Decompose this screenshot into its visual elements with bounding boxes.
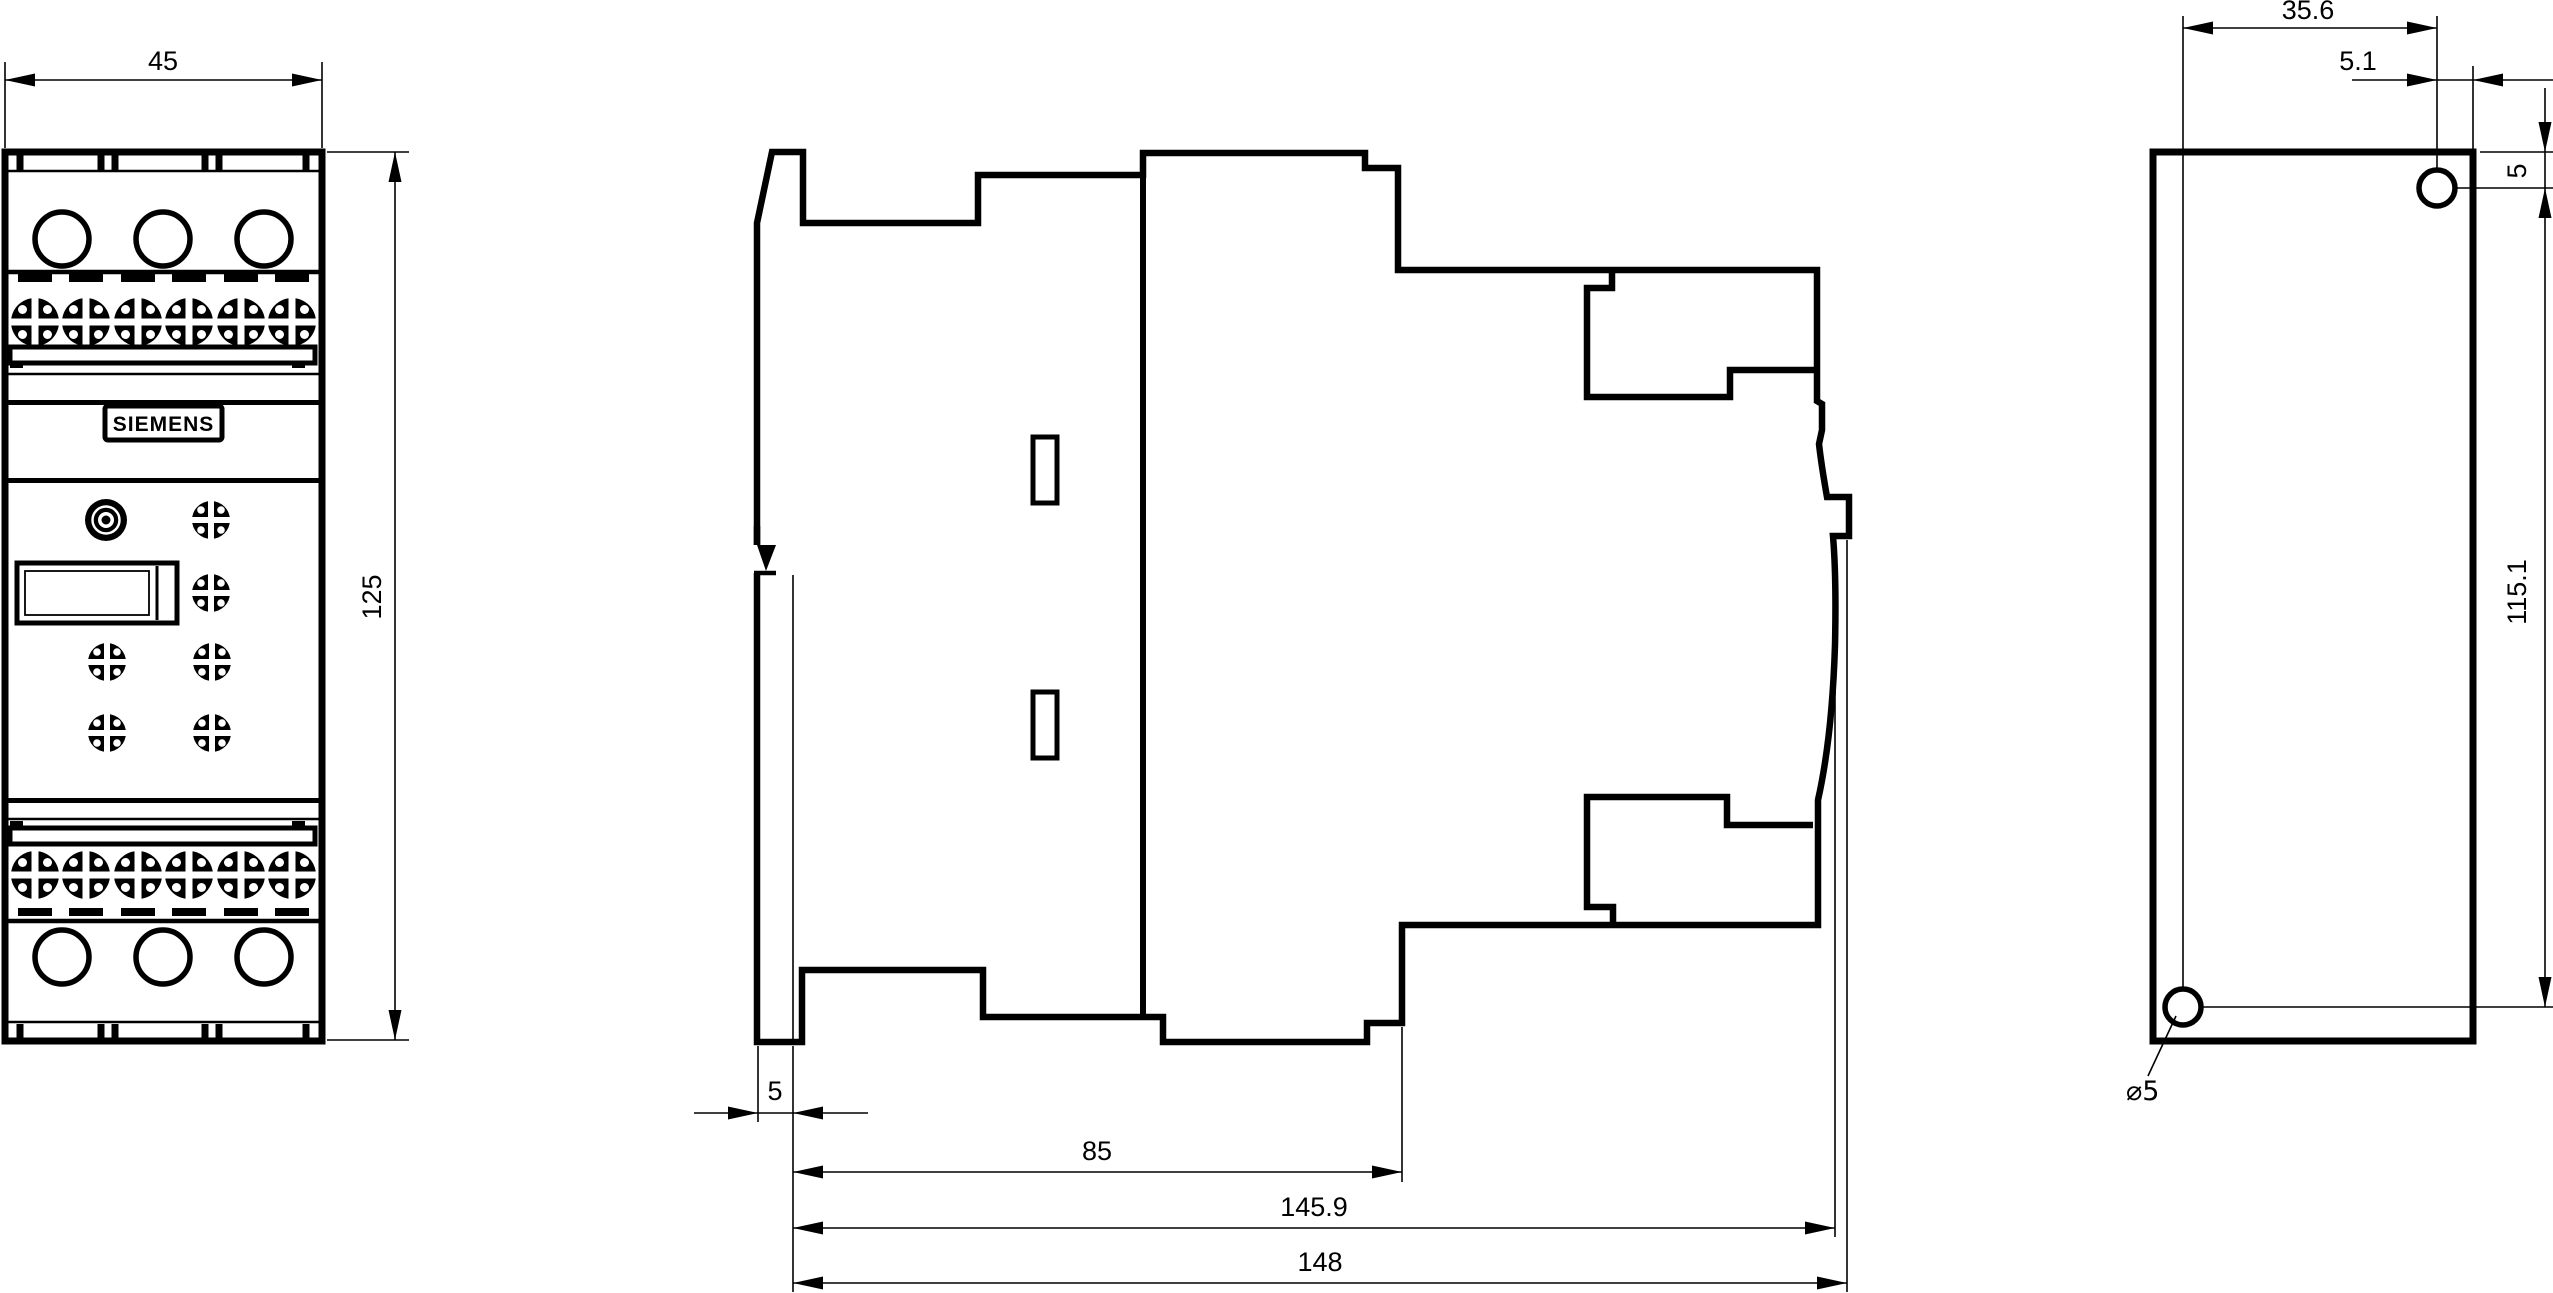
dim-total-depth: 148: [1297, 1247, 1342, 1277]
panel-screw: [192, 574, 230, 612]
top-terminal-slots: [18, 274, 309, 282]
bottom-cover-bar: [10, 828, 315, 844]
dim-depth: 145.9: [1280, 1192, 1348, 1222]
top-cover-foot-right: [292, 361, 305, 368]
front-body-outline: [5, 152, 322, 1041]
dim-rail-plate: 5: [767, 1076, 782, 1106]
dim-hole-edge: 5.1: [2339, 46, 2377, 76]
total-depth-dimension: 148: [793, 540, 1847, 1292]
bottom-cover-foot-right: [292, 821, 305, 828]
top-strip-dividers: [17, 153, 310, 170]
lower-cavity-notch: [1587, 797, 1813, 925]
top-terminal-screws: [11, 298, 316, 346]
panel-screw: [193, 714, 231, 752]
drawing-stage: SIEMENS: [0, 0, 2553, 1293]
dim-front-height: 125: [357, 574, 387, 619]
rear-view: 35.6 5.1 5 115.1 ⌀5: [2126, 0, 2553, 1107]
upper-cavity-notch: [1587, 270, 1815, 397]
rear-outline: [2153, 152, 2473, 1041]
technical-drawing: SIEMENS: [0, 0, 2553, 1293]
dim-hole-diameter: ⌀5: [2126, 1076, 2159, 1107]
panel-screw: [193, 643, 231, 681]
dim-hole-top: 5: [2502, 163, 2532, 178]
hole-pitch-dimension: 5 115.1: [2203, 88, 2553, 1007]
dim-hole-offset: 35.6: [2282, 0, 2335, 25]
dim-front-width: 45: [148, 46, 178, 76]
brand-label: SIEMENS: [113, 413, 215, 436]
rail-plate-dimension: 5: [694, 1046, 868, 1292]
hole-offset-dimension: 35.6: [2183, 0, 2437, 989]
bottom-terminal-slots: [18, 908, 309, 916]
vent-slot-upper: [1033, 437, 1057, 503]
panel-screw: [88, 643, 126, 681]
potentiometer-knob: [85, 499, 127, 541]
display-window: [17, 563, 177, 623]
top-cover-foot-left: [10, 361, 23, 368]
bottom-terminal-holes: [35, 930, 291, 984]
top-cover-bar: [10, 347, 315, 363]
front-width-dimension: 45: [5, 46, 322, 148]
vent-slot-lower: [1033, 692, 1057, 758]
panel-screw: [88, 714, 126, 752]
front-height-dimension: 125: [327, 152, 409, 1040]
mounting-hole-top: [2419, 170, 2455, 206]
din-rail-latch: [751, 526, 798, 573]
control-panel: [17, 499, 231, 752]
bottom-terminal-screws: [11, 851, 316, 899]
side-view: 5 85 145.9 148: [694, 152, 1849, 1292]
dim-body-depth: 85: [1082, 1136, 1112, 1166]
body-depth-dimension: 85: [793, 1027, 1402, 1182]
hole-edge-dimension: 5.1: [2339, 46, 2553, 150]
front-view: SIEMENS: [5, 46, 409, 1041]
bottom-cover-foot-left: [10, 821, 23, 828]
dim-hole-pitch: 115.1: [2502, 559, 2532, 625]
side-outline: [757, 152, 1849, 1042]
top-terminal-holes: [35, 212, 291, 266]
depth-dimension: 145.9: [793, 658, 1835, 1237]
mounting-hole-bottom: [2165, 989, 2201, 1025]
panel-screw: [192, 501, 230, 539]
